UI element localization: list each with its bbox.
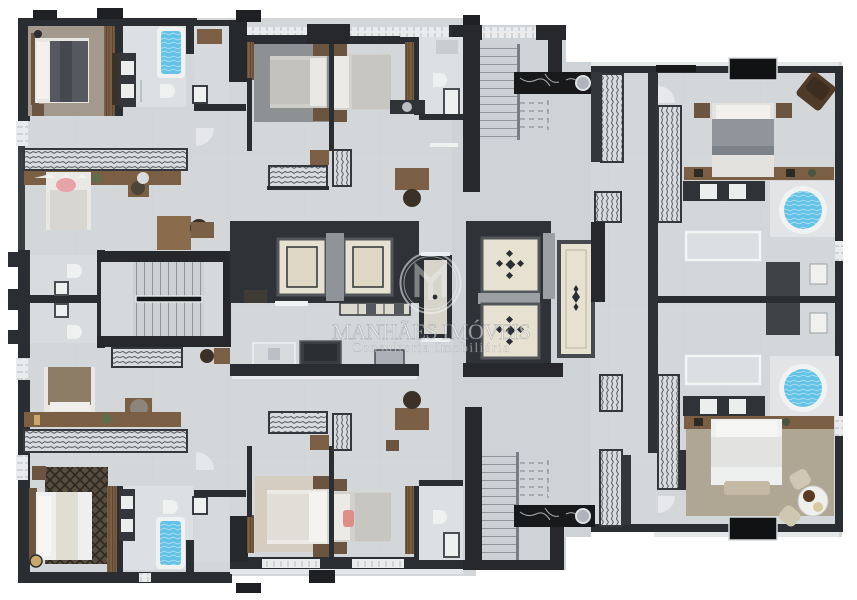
svg-text:Consultoria Imobiliária: Consultoria Imobiliária xyxy=(352,341,511,356)
